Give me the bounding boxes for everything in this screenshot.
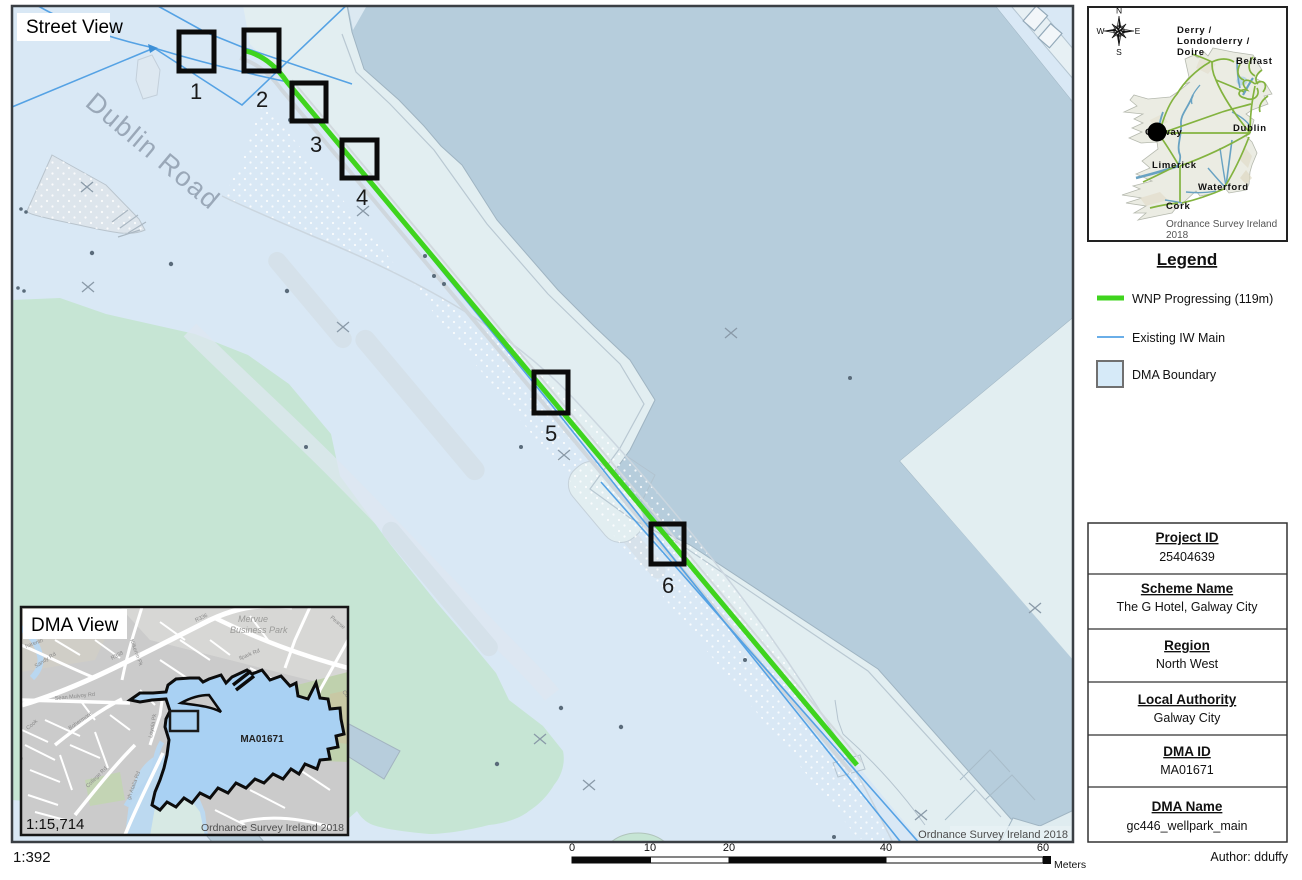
svg-text:Project ID: Project ID <box>1155 530 1218 545</box>
svg-text:Cork: Cork <box>1166 201 1190 212</box>
svg-text:W: W <box>1096 26 1104 36</box>
svg-text:2018: 2018 <box>1166 230 1189 241</box>
svg-text:3: 3 <box>310 132 322 157</box>
svg-text:6: 6 <box>662 573 674 598</box>
svg-text:10: 10 <box>644 842 656 854</box>
svg-text:Scheme Name: Scheme Name <box>1141 581 1234 596</box>
svg-text:DMA ID: DMA ID <box>1163 744 1211 759</box>
svg-text:Region: Region <box>1164 638 1210 653</box>
svg-text:MA01671: MA01671 <box>240 734 284 745</box>
svg-text:DMA Boundary: DMA Boundary <box>1132 368 1217 382</box>
svg-text:Dublin: Dublin <box>1233 123 1267 134</box>
svg-text:gc446_wellpark_main: gc446_wellpark_main <box>1127 819 1248 833</box>
svg-text:MA01671: MA01671 <box>1160 763 1214 777</box>
svg-text:1:392: 1:392 <box>13 849 51 866</box>
svg-text:1: 1 <box>190 79 202 104</box>
svg-text:Ordnance Survey Ireland 2018: Ordnance Survey Ireland 2018 <box>918 829 1068 841</box>
svg-text:2: 2 <box>256 87 268 112</box>
svg-text:Waterford: Waterford <box>1198 182 1249 193</box>
svg-text:The G Hotel, Galway City: The G Hotel, Galway City <box>1116 600 1258 614</box>
svg-text:4: 4 <box>356 185 368 210</box>
svg-text:60: 60 <box>1037 842 1049 854</box>
svg-text:Belfast: Belfast <box>1236 56 1273 67</box>
svg-text:Londonderry /: Londonderry / <box>1177 36 1250 47</box>
svg-text:1:15,714: 1:15,714 <box>26 816 84 833</box>
svg-text:Derry /: Derry / <box>1177 25 1212 36</box>
svg-text:DMA View: DMA View <box>31 615 119 636</box>
svg-text:5: 5 <box>545 421 557 446</box>
svg-text:S: S <box>1116 47 1122 57</box>
svg-text:Meters: Meters <box>1054 859 1086 871</box>
svg-text:Mervue: Mervue <box>238 614 268 624</box>
svg-text:40: 40 <box>880 842 892 854</box>
svg-text:Limerick: Limerick <box>1152 160 1197 171</box>
svg-text:Legend: Legend <box>1157 250 1217 269</box>
svg-text:Ordnance Survey Ireland 2018: Ordnance Survey Ireland 2018 <box>201 822 344 834</box>
svg-text:Business Park: Business Park <box>230 625 288 635</box>
svg-text:Doire: Doire <box>1177 47 1205 58</box>
svg-text:E: E <box>1135 26 1141 36</box>
svg-text:North West: North West <box>1156 657 1219 671</box>
svg-text:DMA Name: DMA Name <box>1152 799 1223 814</box>
svg-text:Local Authority: Local Authority <box>1138 692 1237 707</box>
svg-text:0: 0 <box>569 842 575 854</box>
svg-text:Author: dduffy: Author: dduffy <box>1210 850 1288 864</box>
svg-text:Street View: Street View <box>26 17 123 38</box>
svg-text:20: 20 <box>723 842 735 854</box>
svg-text:Ordnance Survey Ireland: Ordnance Survey Ireland <box>1166 219 1277 230</box>
svg-text:Galway City: Galway City <box>1154 711 1221 725</box>
svg-text:25404639: 25404639 <box>1159 550 1215 564</box>
svg-text:WNP Progressing (119m): WNP Progressing (119m) <box>1132 292 1273 306</box>
svg-text:Existing IW Main: Existing IW Main <box>1132 331 1225 345</box>
